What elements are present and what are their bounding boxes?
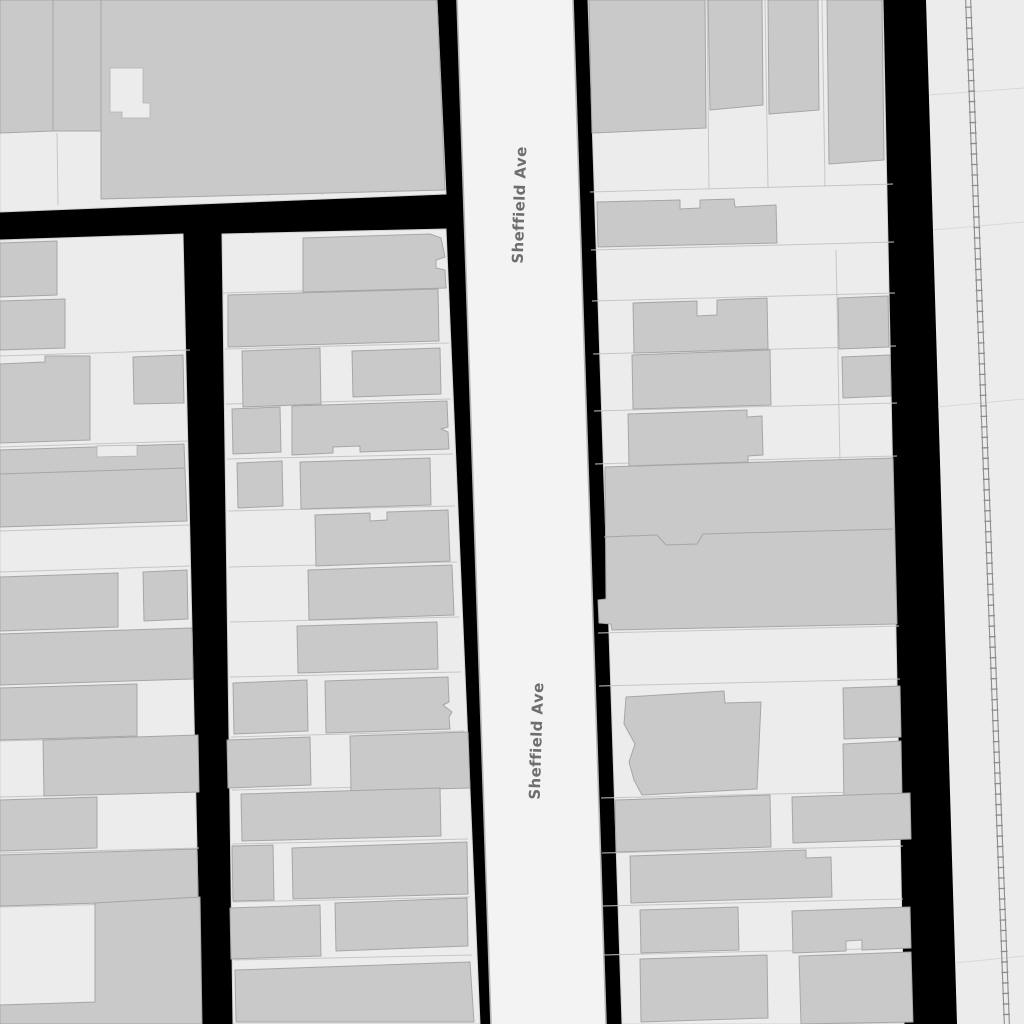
building-footprint [615, 795, 771, 852]
building-footprint [0, 356, 90, 443]
building-footprint [598, 458, 897, 630]
building-footprint [232, 407, 281, 454]
building-footprint [43, 735, 199, 796]
building-footprint [228, 289, 439, 347]
street-label: Sheffield Ave [526, 682, 548, 800]
building-footprint [0, 241, 57, 297]
building-footprint [768, 0, 819, 114]
building-footprint [300, 458, 431, 509]
building-footprint [624, 691, 761, 795]
building-footprint [230, 905, 321, 959]
building-courtyard [97, 445, 137, 457]
building-footprint [640, 907, 739, 953]
building-footprint [0, 573, 118, 631]
building-footprint [53, 0, 101, 131]
building-footprint [352, 348, 441, 397]
building-footprint [640, 955, 768, 1022]
map-viewport[interactable]: Sheffield AveSheffield Ave [0, 0, 1024, 1024]
building-footprint [325, 677, 452, 733]
street-label: Sheffield Ave [509, 146, 531, 264]
building-footprint [350, 732, 470, 791]
building-footprint [101, 0, 445, 199]
building-footprint [242, 348, 321, 407]
building-footprint [589, 0, 706, 133]
building-footprint [143, 570, 188, 621]
building-footprint [842, 355, 891, 398]
building-footprint [0, 684, 137, 740]
building-footprint [227, 737, 311, 788]
building-footprint [0, 444, 187, 527]
building-footprint [297, 622, 438, 673]
building-footprint [0, 299, 65, 350]
building-footprint [133, 355, 184, 404]
building-footprint [827, 0, 884, 164]
building-footprint [0, 628, 193, 685]
building-footprint [632, 350, 771, 409]
building-footprint [292, 401, 449, 455]
building-footprint [838, 296, 889, 349]
building-footprint [708, 0, 763, 110]
building-footprint [0, 0, 53, 133]
building-footprint [0, 849, 198, 906]
building-footprint [335, 898, 468, 951]
building-footprint [308, 565, 454, 620]
building-footprint [237, 461, 283, 508]
building-footprint [292, 842, 468, 899]
building-footprint [303, 234, 446, 292]
building-footprint [630, 850, 832, 903]
building-footprint [235, 962, 474, 1022]
building-footprint [628, 410, 763, 466]
building-footprint [792, 793, 911, 843]
building-footprint [843, 686, 901, 739]
building-footprint [799, 952, 913, 1024]
building-footprint [232, 845, 274, 901]
building-footprint [843, 741, 902, 799]
building-footprint [233, 680, 308, 734]
street-map-svg: Sheffield AveSheffield Ave [0, 0, 1024, 1024]
building-footprint [241, 788, 441, 841]
building-footprint [0, 797, 97, 851]
